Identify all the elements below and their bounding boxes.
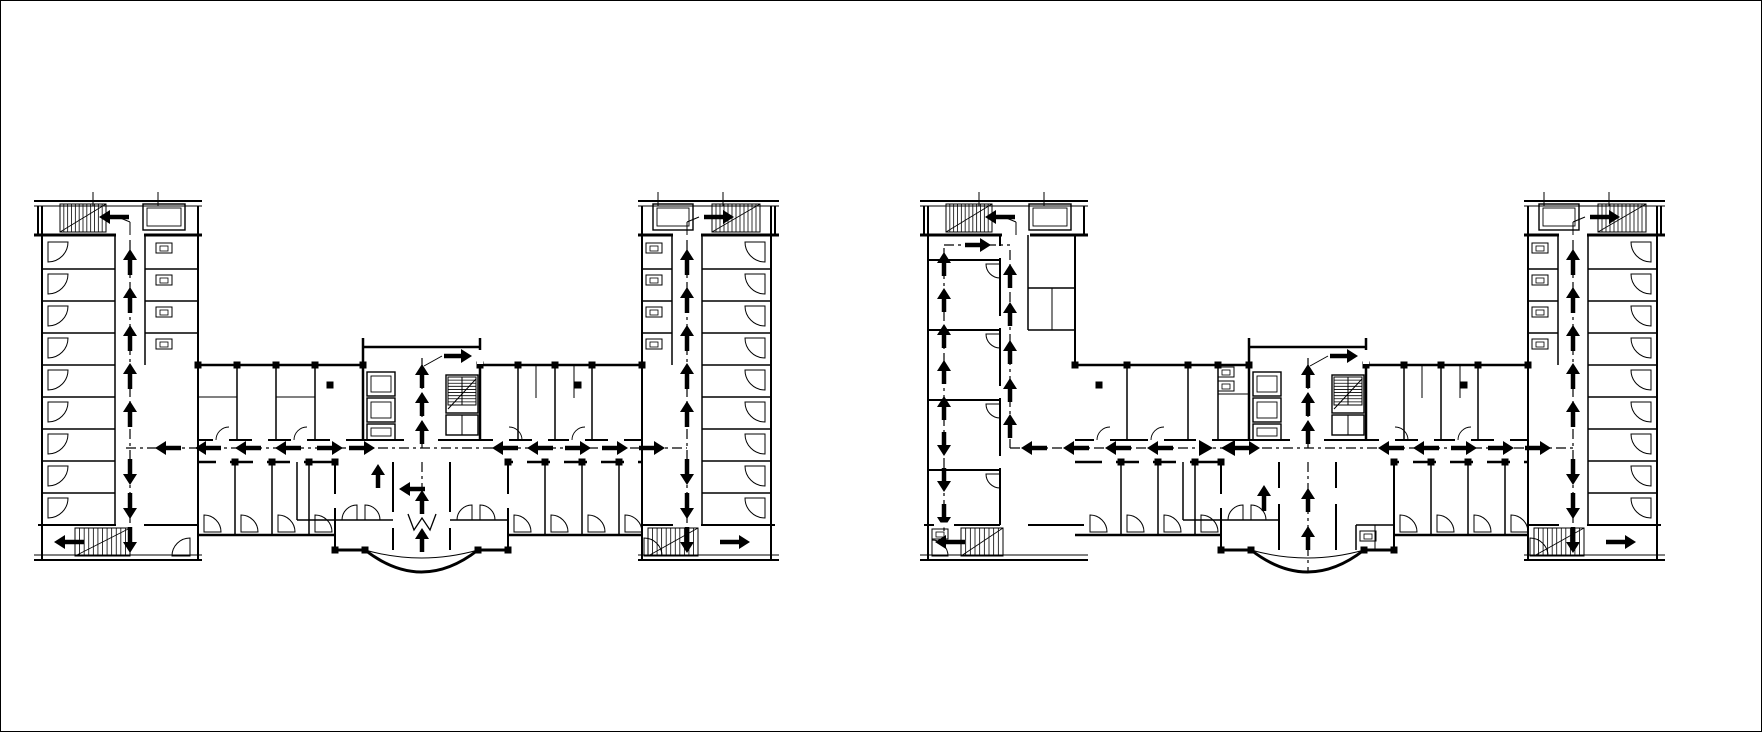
cad-drawing-area [0, 0, 1762, 732]
evacuation-floor-plan-drawing [0, 0, 1762, 732]
